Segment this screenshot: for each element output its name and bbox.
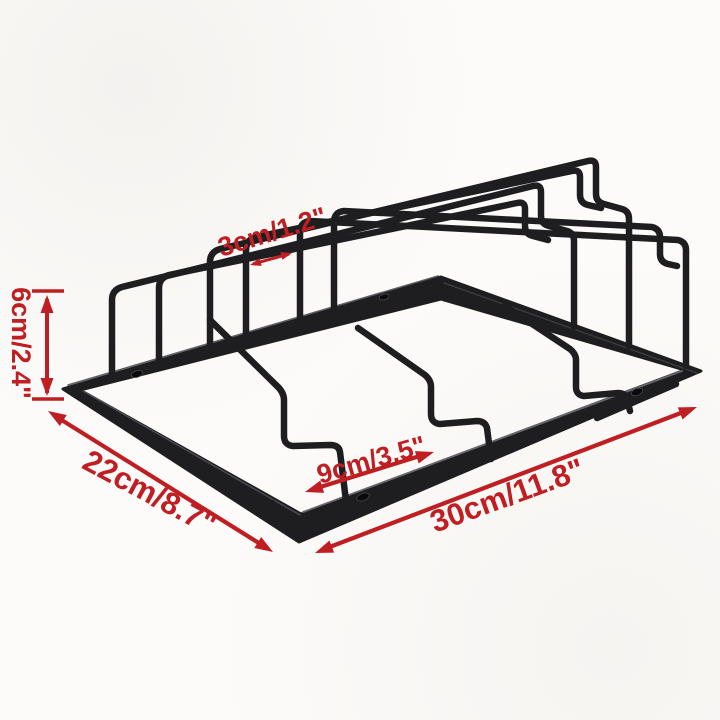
rail-front-hook <box>358 328 491 459</box>
frame-highlight-right <box>444 283 697 373</box>
dimension-label-height: 6cm/2.4" <box>6 287 36 399</box>
arrowhead-icon <box>41 295 54 313</box>
arrowhead-icon <box>313 541 334 560</box>
arrowhead-icon <box>41 378 54 396</box>
frame-highlight-back <box>68 276 438 385</box>
rack-diagram-canvas: 3cm/1.2" 6cm/2.4" 22cm/8.7" 9cm/3.5" 30c… <box>0 0 720 720</box>
rail-wire <box>159 203 548 362</box>
arrowhead-icon <box>678 401 699 420</box>
product-dimension-image: 3cm/1.2" 6cm/2.4" 22cm/8.7" 9cm/3.5" 30c… <box>0 0 720 720</box>
